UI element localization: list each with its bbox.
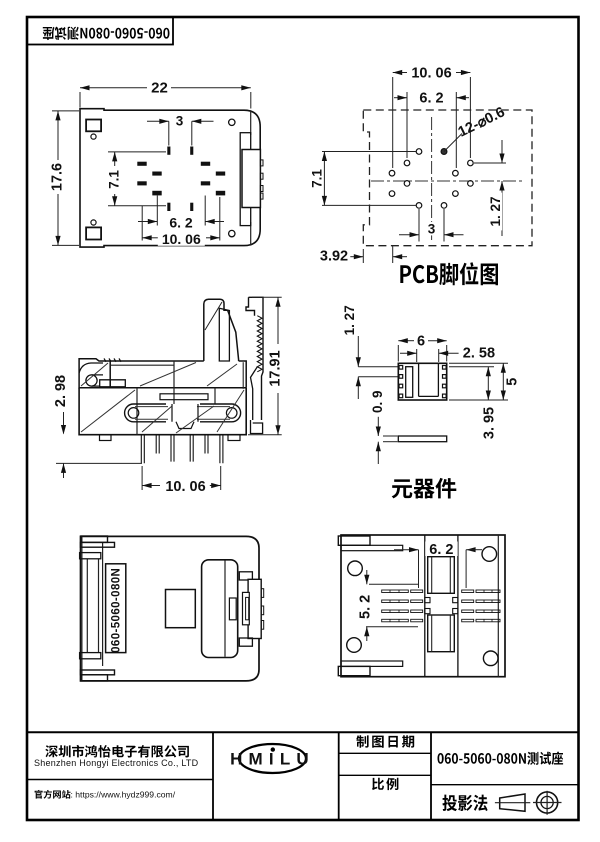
svg-text:7.1: 7.1 [107, 170, 122, 189]
svg-text:5. 2: 5. 2 [358, 595, 374, 619]
svg-text:1. 27: 1. 27 [342, 305, 357, 335]
svg-text:6: 6 [417, 333, 425, 349]
svg-text:22: 22 [151, 80, 168, 97]
svg-text:3.92: 3.92 [320, 248, 348, 264]
svg-text:3: 3 [428, 222, 436, 237]
svg-text:3. 95: 3. 95 [482, 407, 498, 439]
svg-text:6. 2: 6. 2 [419, 91, 443, 107]
svg-text:3: 3 [176, 114, 184, 129]
svg-text:: https://www.hydz999.com/: : https://www.hydz999.com/ [71, 790, 176, 800]
svg-text:10. 06: 10. 06 [411, 65, 451, 81]
svg-text:1. 27: 1. 27 [488, 196, 503, 226]
svg-text:10. 06: 10. 06 [165, 479, 205, 495]
svg-text:17.91: 17.91 [268, 350, 284, 386]
svg-text:Shenzhen Hongyi Electronics Co: Shenzhen Hongyi Electronics Co., LTD [34, 758, 199, 768]
svg-text:7.1: 7.1 [309, 169, 324, 188]
svg-text:0. 9: 0. 9 [370, 390, 385, 413]
svg-text:HMILU: HMILU [230, 749, 315, 768]
svg-text:2. 58: 2. 58 [463, 346, 495, 362]
svg-text:2. 98: 2. 98 [53, 375, 69, 407]
svg-text:10. 06: 10. 06 [162, 231, 201, 247]
svg-text:060-5060-080N: 060-5060-080N [110, 568, 122, 653]
svg-text:5: 5 [504, 378, 520, 386]
svg-text:17.6: 17.6 [50, 163, 66, 191]
svg-text:6. 2: 6. 2 [429, 542, 453, 558]
svg-text:6. 2: 6. 2 [169, 215, 193, 231]
